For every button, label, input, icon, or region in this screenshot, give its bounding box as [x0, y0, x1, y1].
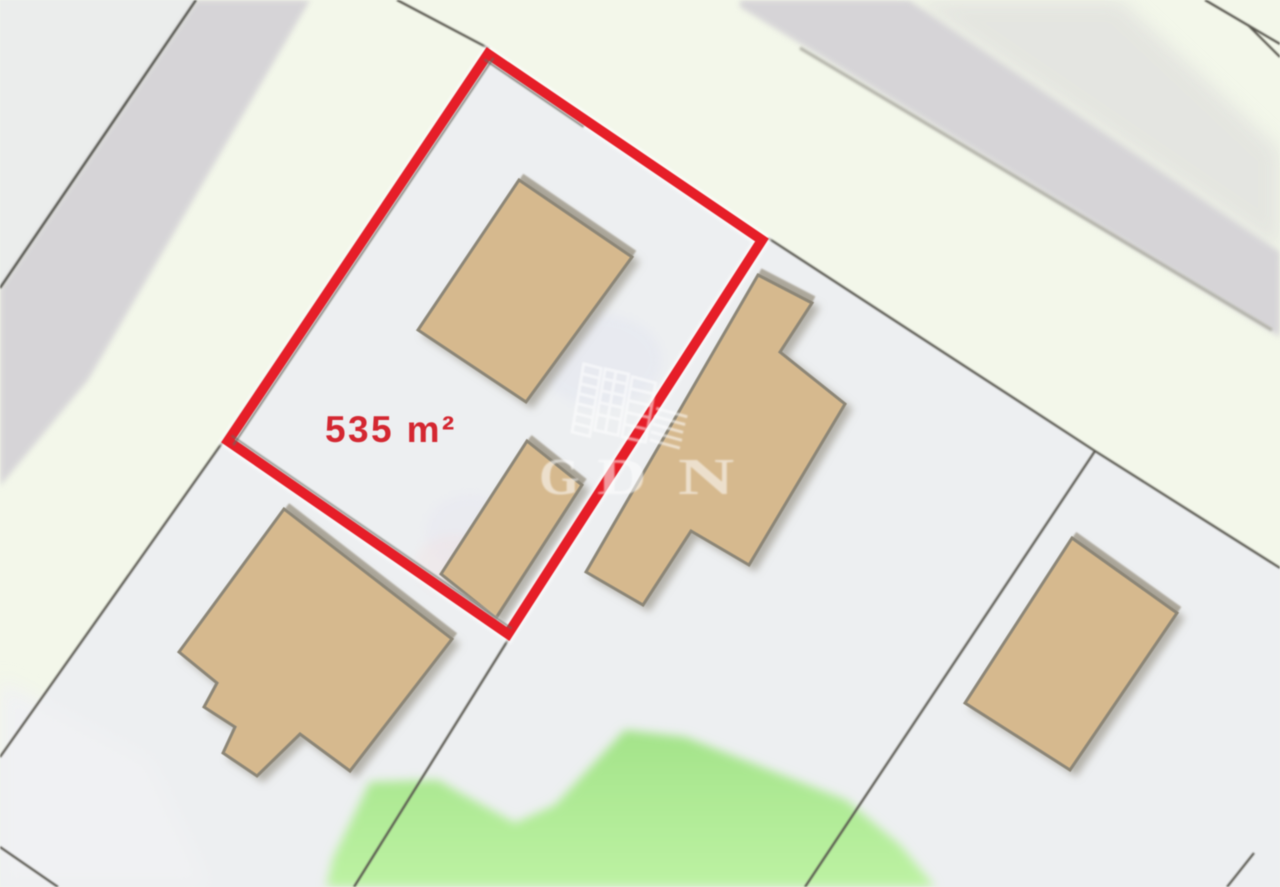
svg-text:535 m²: 535 m² — [325, 409, 457, 450]
svg-text:D: D — [597, 449, 647, 506]
svg-text:G: G — [539, 449, 579, 506]
svg-text:N: N — [678, 449, 734, 506]
